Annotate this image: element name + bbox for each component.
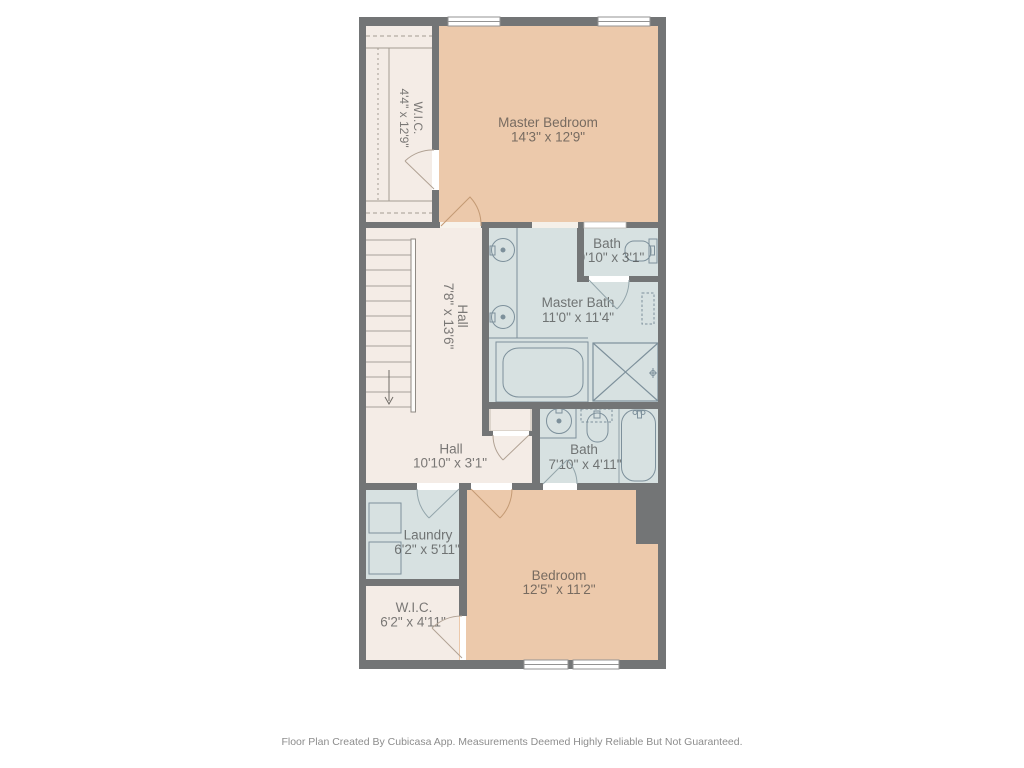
svg-text:10'10" x 3'1": 10'10" x 3'1": [413, 456, 487, 471]
svg-text:W.I.C.: W.I.C.: [396, 600, 433, 615]
svg-text:Bedroom: Bedroom: [532, 568, 587, 583]
svg-text:9'10" x 3'1": 9'10" x 3'1": [578, 250, 645, 265]
svg-text:Master Bedroom: Master Bedroom: [498, 115, 598, 130]
svg-text:11'0" x 11'4": 11'0" x 11'4": [542, 310, 614, 325]
svg-text:4'4" x 12'9": 4'4" x 12'9": [397, 88, 411, 147]
svg-text:Bath: Bath: [593, 236, 621, 251]
svg-text:Master Bath: Master Bath: [542, 295, 615, 310]
svg-text:Bath: Bath: [570, 442, 598, 457]
svg-text:Laundry: Laundry: [404, 528, 453, 543]
svg-text:Hall: Hall: [455, 304, 470, 327]
svg-text:W.I.C.: W.I.C.: [411, 102, 425, 135]
svg-text:6'2" x 4'11": 6'2" x 4'11": [380, 615, 446, 630]
svg-text:7'8" x 13'6": 7'8" x 13'6": [441, 283, 456, 350]
svg-text:14'3" x 12'9": 14'3" x 12'9": [511, 130, 585, 145]
svg-text:7'10" x 4'11": 7'10" x 4'11": [548, 457, 621, 472]
svg-text:Floor Plan Created By Cubicasa: Floor Plan Created By Cubicasa App. Meas…: [281, 736, 742, 748]
svg-text:6'2" x 5'11": 6'2" x 5'11": [394, 542, 460, 557]
svg-text:12'5" x 11'2": 12'5" x 11'2": [522, 582, 595, 597]
svg-text:Hall: Hall: [439, 442, 462, 457]
